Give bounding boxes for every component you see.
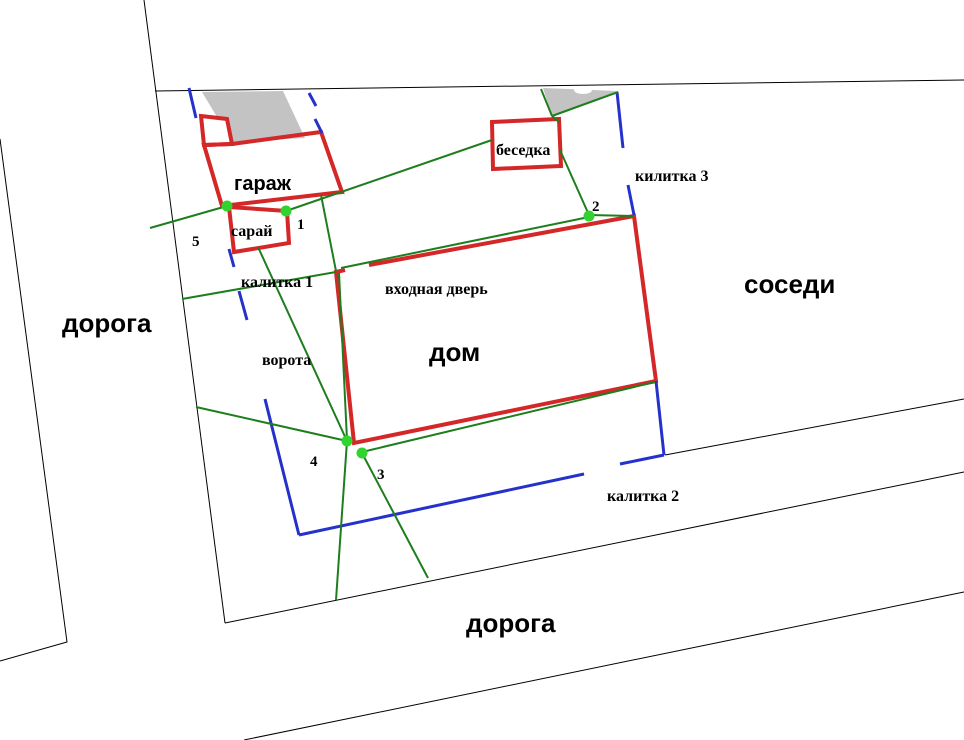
fence-east-below-house [656,381,664,455]
fence-south-east-of-gate2 [620,455,664,464]
south-road-outer-edge [244,592,964,740]
path-point3-to-south-road [362,453,428,578]
path-garage-to-door [321,195,336,271]
path-road-to-point5 [150,206,227,228]
site-plan-drawing: дорогадорогасоседидомгаражсарайбеседкавх… [0,0,964,740]
road-label-south: дорога [466,608,556,638]
path-point1-to-gazebo [286,140,492,211]
garage-annex [201,116,232,145]
path-point4-to-south-road [336,441,347,600]
marker-dot-5 [222,201,233,212]
neighbors-label: соседи [744,269,835,299]
path-point2-to-house-corner [589,215,633,216]
vorota-label: ворота [262,352,311,369]
gate2-label: калитка 2 [607,488,679,505]
road-label-west: дорога [62,308,152,338]
boundary-whiteout-blob [574,86,592,94]
fence-west-below-vorota [265,399,299,535]
marker-label-3: 3 [377,467,385,483]
fence-east-below-gate3 [628,185,634,215]
marker-label-1: 1 [297,217,305,233]
shed-label: сарай [231,223,272,240]
marker-dot-4 [342,436,353,447]
garage-label: гараж [234,173,292,195]
marker-label-2: 2 [592,199,600,215]
fence-west-below-gate1 [239,291,247,320]
fence-top-right-of-garage-a [309,93,316,106]
entrance-door-label: входная дверь [385,281,488,298]
path-west-road-to-point4 [196,407,347,441]
gate3-label: килитка 3 [635,168,708,185]
marker-label-5: 5 [192,234,200,250]
south-plot-boundary-line [225,472,964,623]
site-plan-canvas: дорогадорогасоседидомгаражсарайбеседкавх… [0,0,964,740]
fence-top-left-of-garage [189,88,196,118]
house-label: дом [429,337,480,367]
west-road-outer-edge [0,139,67,661]
east-neighbor-road-edge [665,399,964,455]
gazebo-label: беседка [496,142,550,159]
gate1-label: калитка 1 [241,274,313,291]
marker-label-4: 4 [310,454,318,470]
marker-dot-1 [281,206,292,217]
fence-east-above-gate3 [617,92,623,148]
marker-dot-3 [357,448,368,459]
house-body [336,216,656,443]
path-gazebo-to-point2 [560,150,589,215]
